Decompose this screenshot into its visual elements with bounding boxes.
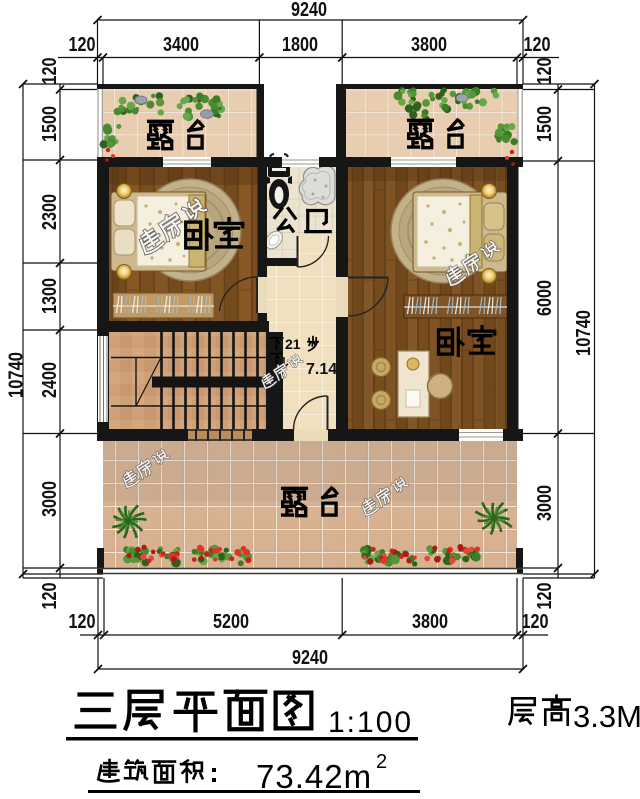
svg-text:9240: 9240 [291, 0, 327, 21]
svg-text:3400: 3400 [163, 34, 199, 56]
svg-text:120: 120 [522, 611, 549, 633]
svg-text:1300: 1300 [39, 278, 61, 314]
svg-text:3000: 3000 [534, 485, 556, 521]
svg-text:2400: 2400 [39, 362, 61, 398]
svg-text:120: 120 [69, 34, 96, 56]
svg-text:120: 120 [69, 611, 96, 633]
svg-text:5200: 5200 [213, 611, 249, 633]
svg-text:3800: 3800 [411, 34, 447, 56]
svg-text:120: 120 [39, 583, 61, 610]
svg-text:1800: 1800 [282, 34, 318, 56]
svg-text:2300: 2300 [39, 194, 61, 230]
svg-text:7.14: 7.14 [306, 361, 337, 378]
svg-text:9240: 9240 [292, 647, 328, 669]
svg-text:120: 120 [524, 34, 551, 56]
svg-text:1:100: 1:100 [328, 706, 413, 739]
svg-text:3800: 3800 [412, 611, 448, 633]
svg-text:21: 21 [285, 336, 301, 352]
svg-text:120: 120 [534, 583, 556, 610]
svg-text:6000: 6000 [534, 280, 556, 316]
svg-text:10740: 10740 [573, 310, 595, 356]
svg-text:10740: 10740 [6, 352, 28, 398]
svg-text:3000: 3000 [39, 481, 61, 517]
svg-text:1500: 1500 [534, 106, 556, 142]
svg-text:120: 120 [534, 58, 556, 85]
svg-text:3.3M: 3.3M [573, 699, 640, 734]
svg-text:120: 120 [39, 58, 61, 85]
svg-text:73.42m: 73.42m [256, 758, 372, 795]
svg-text:1500: 1500 [39, 106, 61, 142]
svg-text:2: 2 [376, 751, 387, 773]
